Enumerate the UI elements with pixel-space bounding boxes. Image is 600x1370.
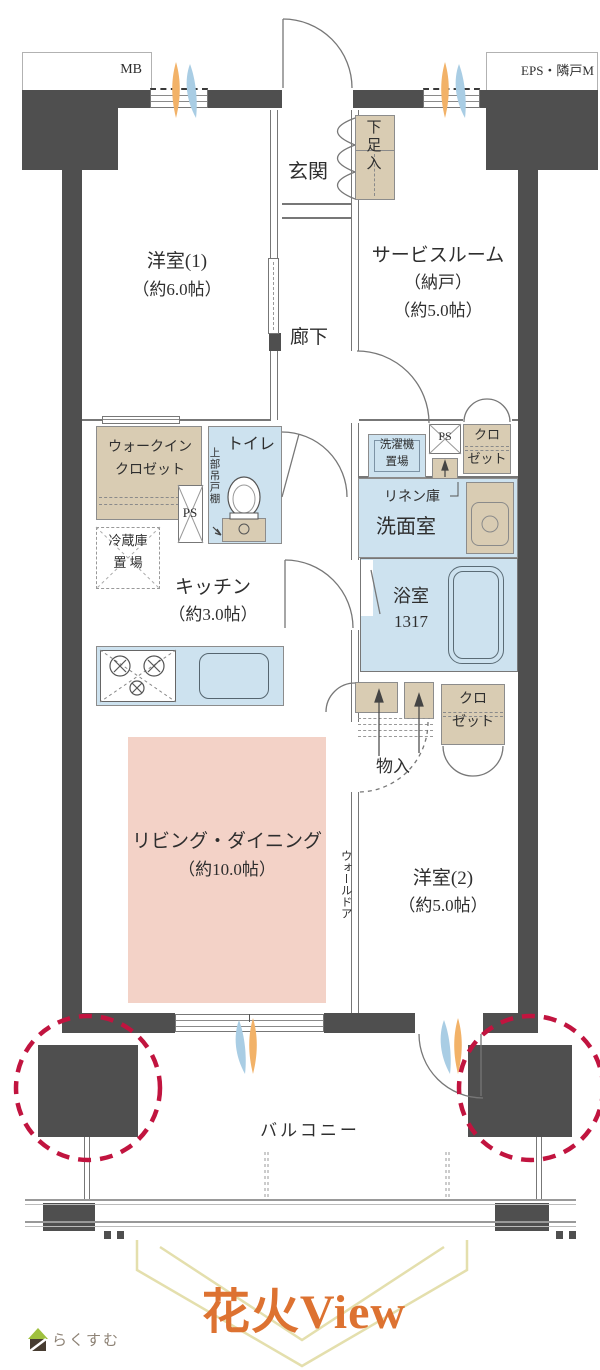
linen-label: リネン庫 bbox=[384, 490, 440, 505]
vent-flame-icon bbox=[441, 62, 466, 118]
toilet-door-arc bbox=[282, 432, 347, 497]
linen-pointer-line bbox=[450, 482, 458, 496]
bath-name: 浴室 bbox=[393, 587, 429, 607]
corridor-label: 廊下 bbox=[290, 328, 328, 349]
wic-label-1: ウォークイン bbox=[108, 440, 192, 455]
closet-bottom-label-2: ゼット bbox=[452, 715, 494, 730]
vanity-faucet-icon bbox=[482, 516, 498, 532]
toilet-label: トイレ bbox=[227, 436, 275, 454]
kitchen-name: キッチン bbox=[175, 578, 251, 599]
laundry-label-1: 洗濯機 bbox=[380, 439, 415, 452]
shoe-box-door-arc bbox=[338, 172, 356, 199]
plan-overlay bbox=[0, 0, 600, 1370]
west1-size: （約6.0帖） bbox=[132, 281, 221, 300]
closet-top-label-1: クロ bbox=[474, 428, 500, 442]
washroom-door-arc bbox=[285, 560, 353, 628]
storage-door-arc bbox=[326, 683, 355, 712]
west2-size: （約5.0帖） bbox=[398, 897, 487, 916]
balcony-label: バルコニー bbox=[260, 1122, 360, 1141]
west1-name: 洋室(1) bbox=[147, 252, 207, 273]
wic-label-2: クロゼット bbox=[115, 463, 185, 478]
shoe-box-label: 下足入 bbox=[364, 119, 381, 173]
service-room-door-arc bbox=[357, 351, 429, 423]
toilet-fixture-icon bbox=[228, 477, 260, 534]
brand-logo-icon bbox=[28, 1328, 48, 1351]
floor-plan: MB EPS・隣戸M bbox=[0, 0, 600, 1370]
west2-name: 洋室(2) bbox=[413, 869, 473, 890]
stove-hatch bbox=[100, 650, 176, 702]
living-dining-size: （約10.0帖） bbox=[178, 861, 276, 880]
living-dining-name: リビング・ダイニング bbox=[132, 832, 322, 853]
shoe-box-door-arc bbox=[338, 118, 356, 145]
bath-door-leaf bbox=[371, 570, 380, 614]
toilet-door-leaf bbox=[282, 434, 299, 497]
vent-flame-icon bbox=[441, 1018, 462, 1074]
vent-flame-icon bbox=[236, 1018, 257, 1074]
brand-label: らくすむ bbox=[52, 1333, 120, 1350]
wall-door-label: ウォールドア bbox=[339, 850, 352, 919]
vent-flame-icon bbox=[172, 62, 197, 118]
fridge-label-2: 置 場 bbox=[113, 556, 142, 570]
view-label: 花火View bbox=[202, 1287, 406, 1340]
storage-label: 物入 bbox=[376, 758, 410, 777]
washroom-label: 洗面室 bbox=[376, 516, 436, 538]
service-size: （約5.0帖） bbox=[393, 302, 482, 321]
closet-top-door-arc bbox=[464, 399, 487, 422]
laundry-label-2: 置場 bbox=[386, 456, 409, 469]
service-sub: （納戸） bbox=[404, 274, 472, 293]
closet-top-door-arc bbox=[487, 399, 510, 422]
ps-right-label: PS bbox=[438, 430, 451, 443]
closet-bottom-door-arc bbox=[443, 746, 472, 776]
closet-bottom-label-1: クロ bbox=[459, 692, 487, 707]
genkan-label: 玄関 bbox=[288, 161, 328, 183]
balcony-partition bbox=[265, 1152, 449, 1199]
upper-cabinet-label: 上部吊戸棚 bbox=[208, 447, 220, 505]
bath-size: 1317 bbox=[394, 613, 428, 632]
closet-bottom-door-arc bbox=[472, 746, 503, 776]
closet-top-label-2: ゼット bbox=[467, 452, 506, 466]
entrance-door-arc bbox=[283, 19, 352, 88]
shoe-box-door-arc bbox=[338, 145, 356, 172]
service-name: サービスルーム bbox=[372, 246, 504, 267]
kitchen-size: （約3.0帖） bbox=[168, 606, 257, 625]
fridge-label-1: 冷蔵庫 bbox=[108, 534, 147, 548]
ps-left-label: PS bbox=[183, 506, 197, 520]
upper-cabinet-pointer bbox=[213, 527, 221, 535]
